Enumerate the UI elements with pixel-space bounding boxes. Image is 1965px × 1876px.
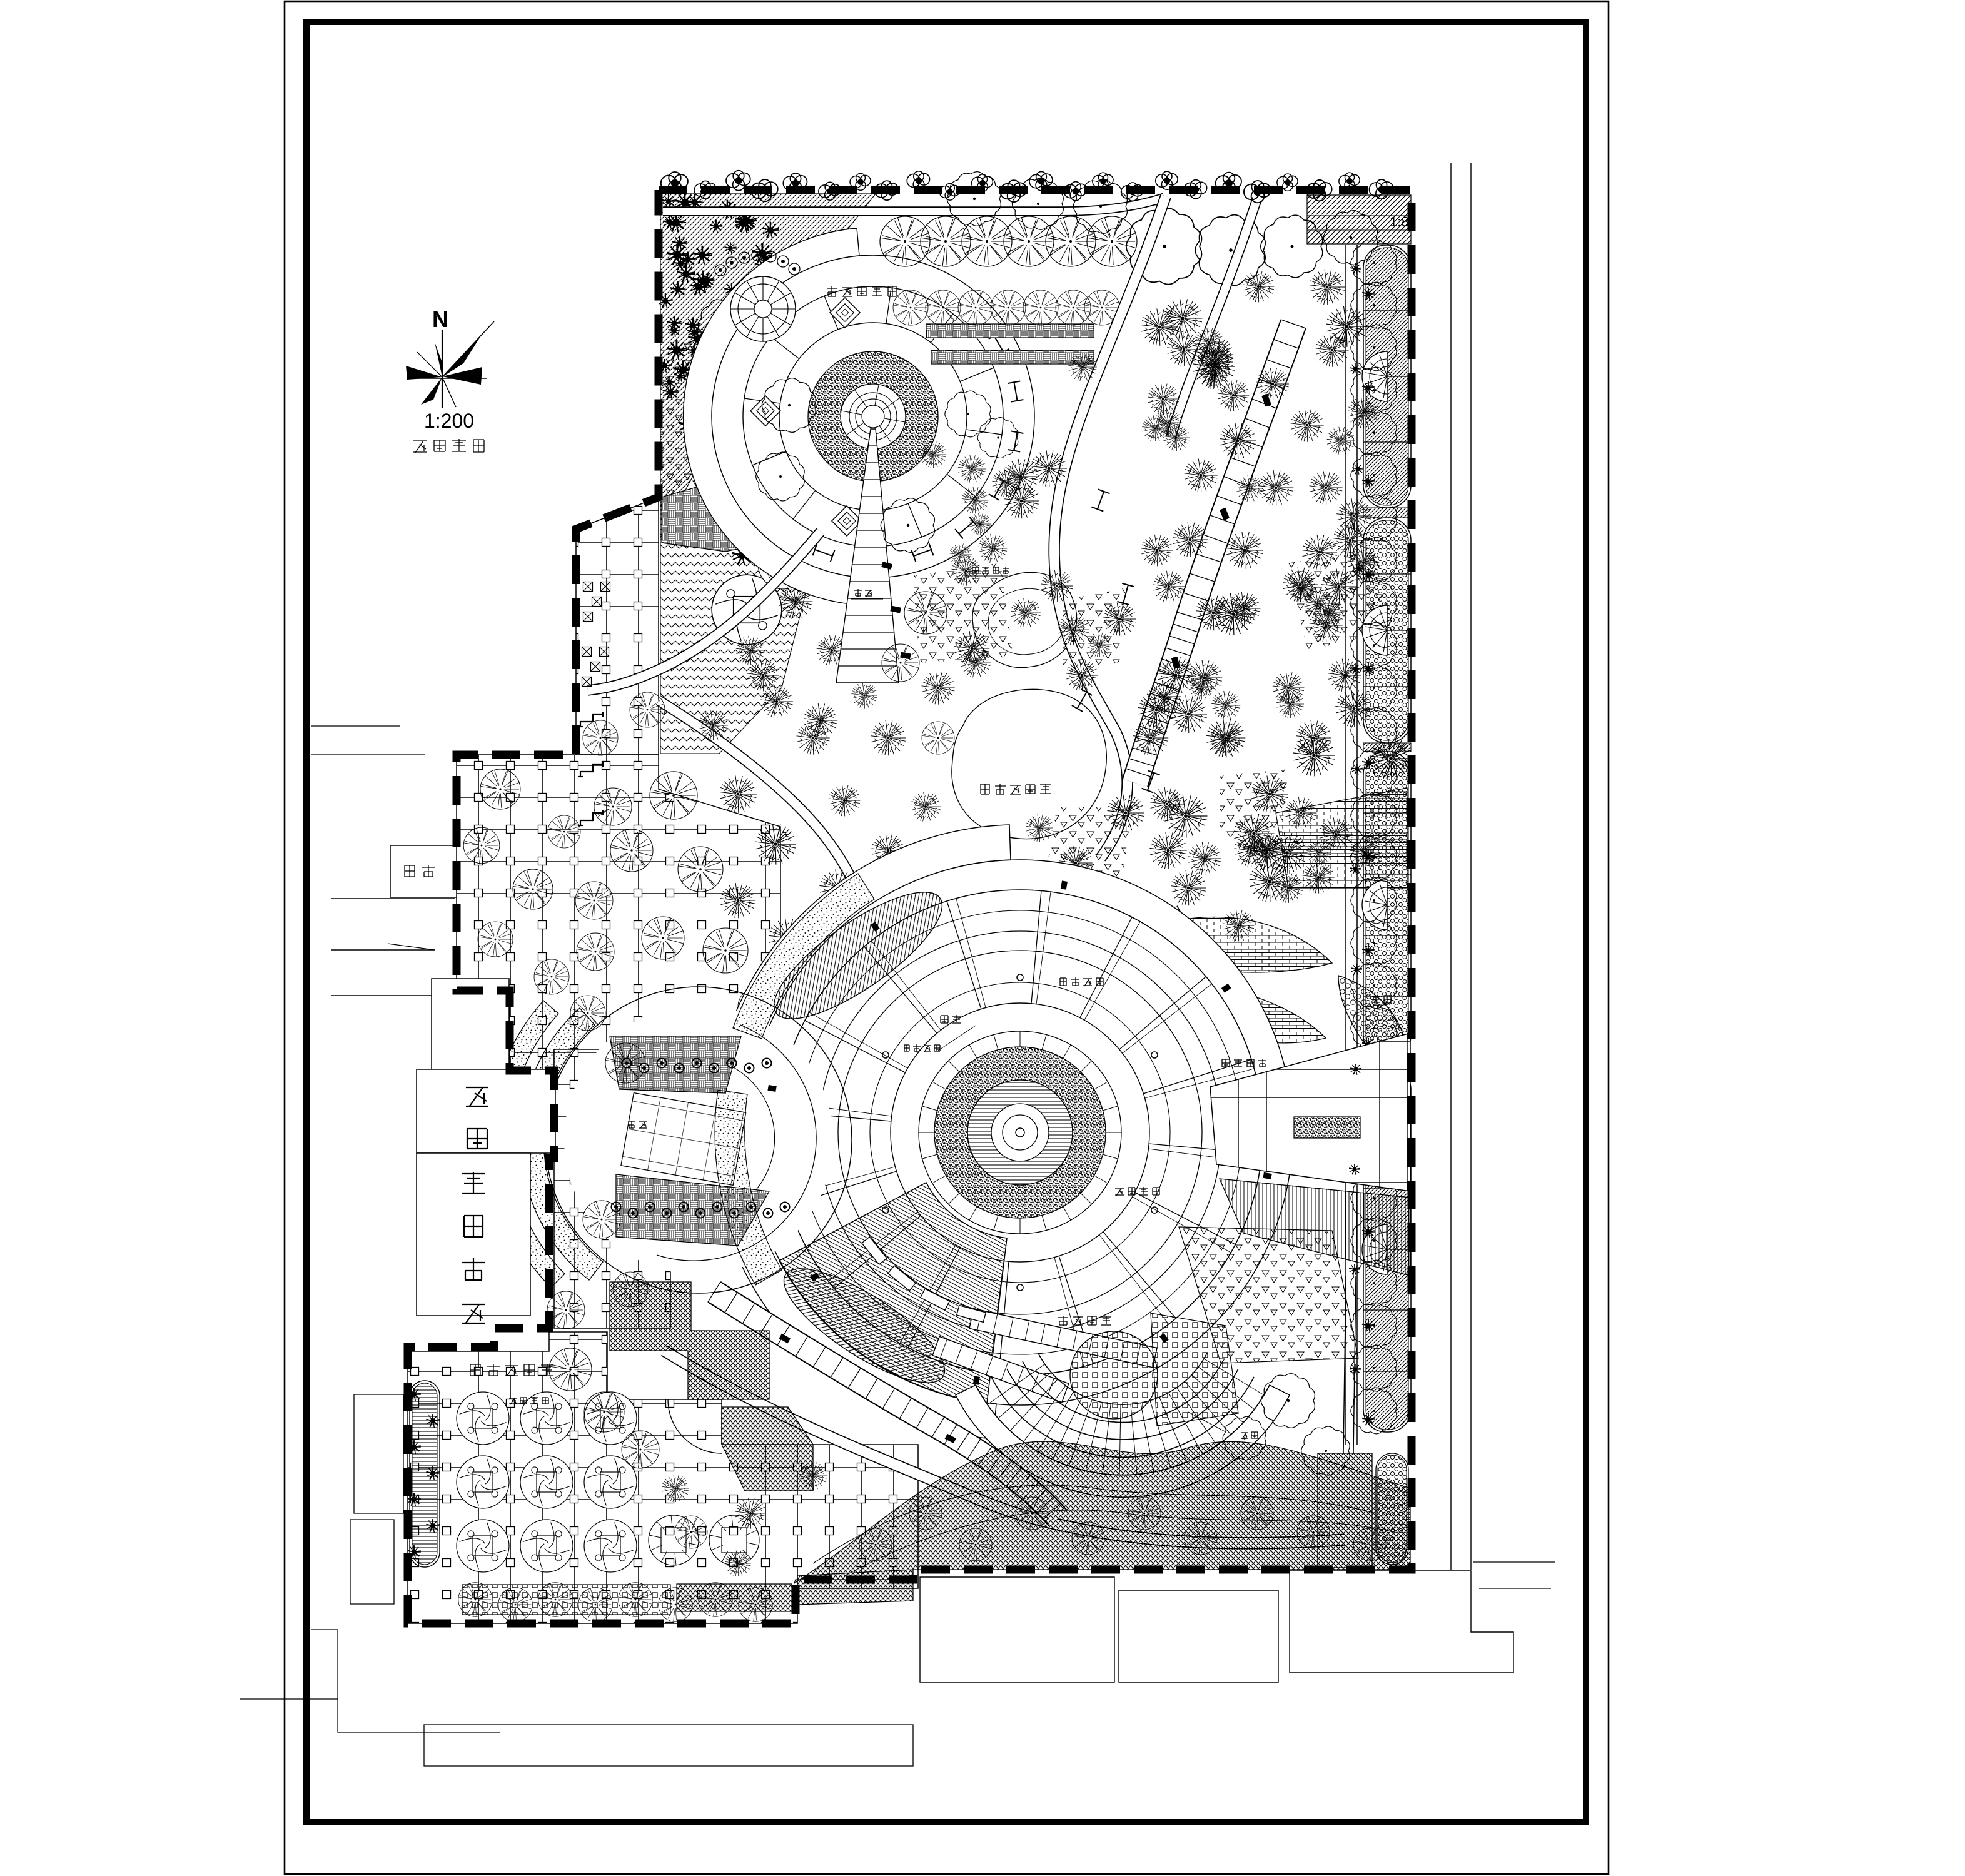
svg-text:1:200: 1:200 bbox=[424, 410, 474, 432]
svg-text:1:8: 1:8 bbox=[1390, 214, 1409, 229]
svg-text:N: N bbox=[432, 306, 448, 332]
